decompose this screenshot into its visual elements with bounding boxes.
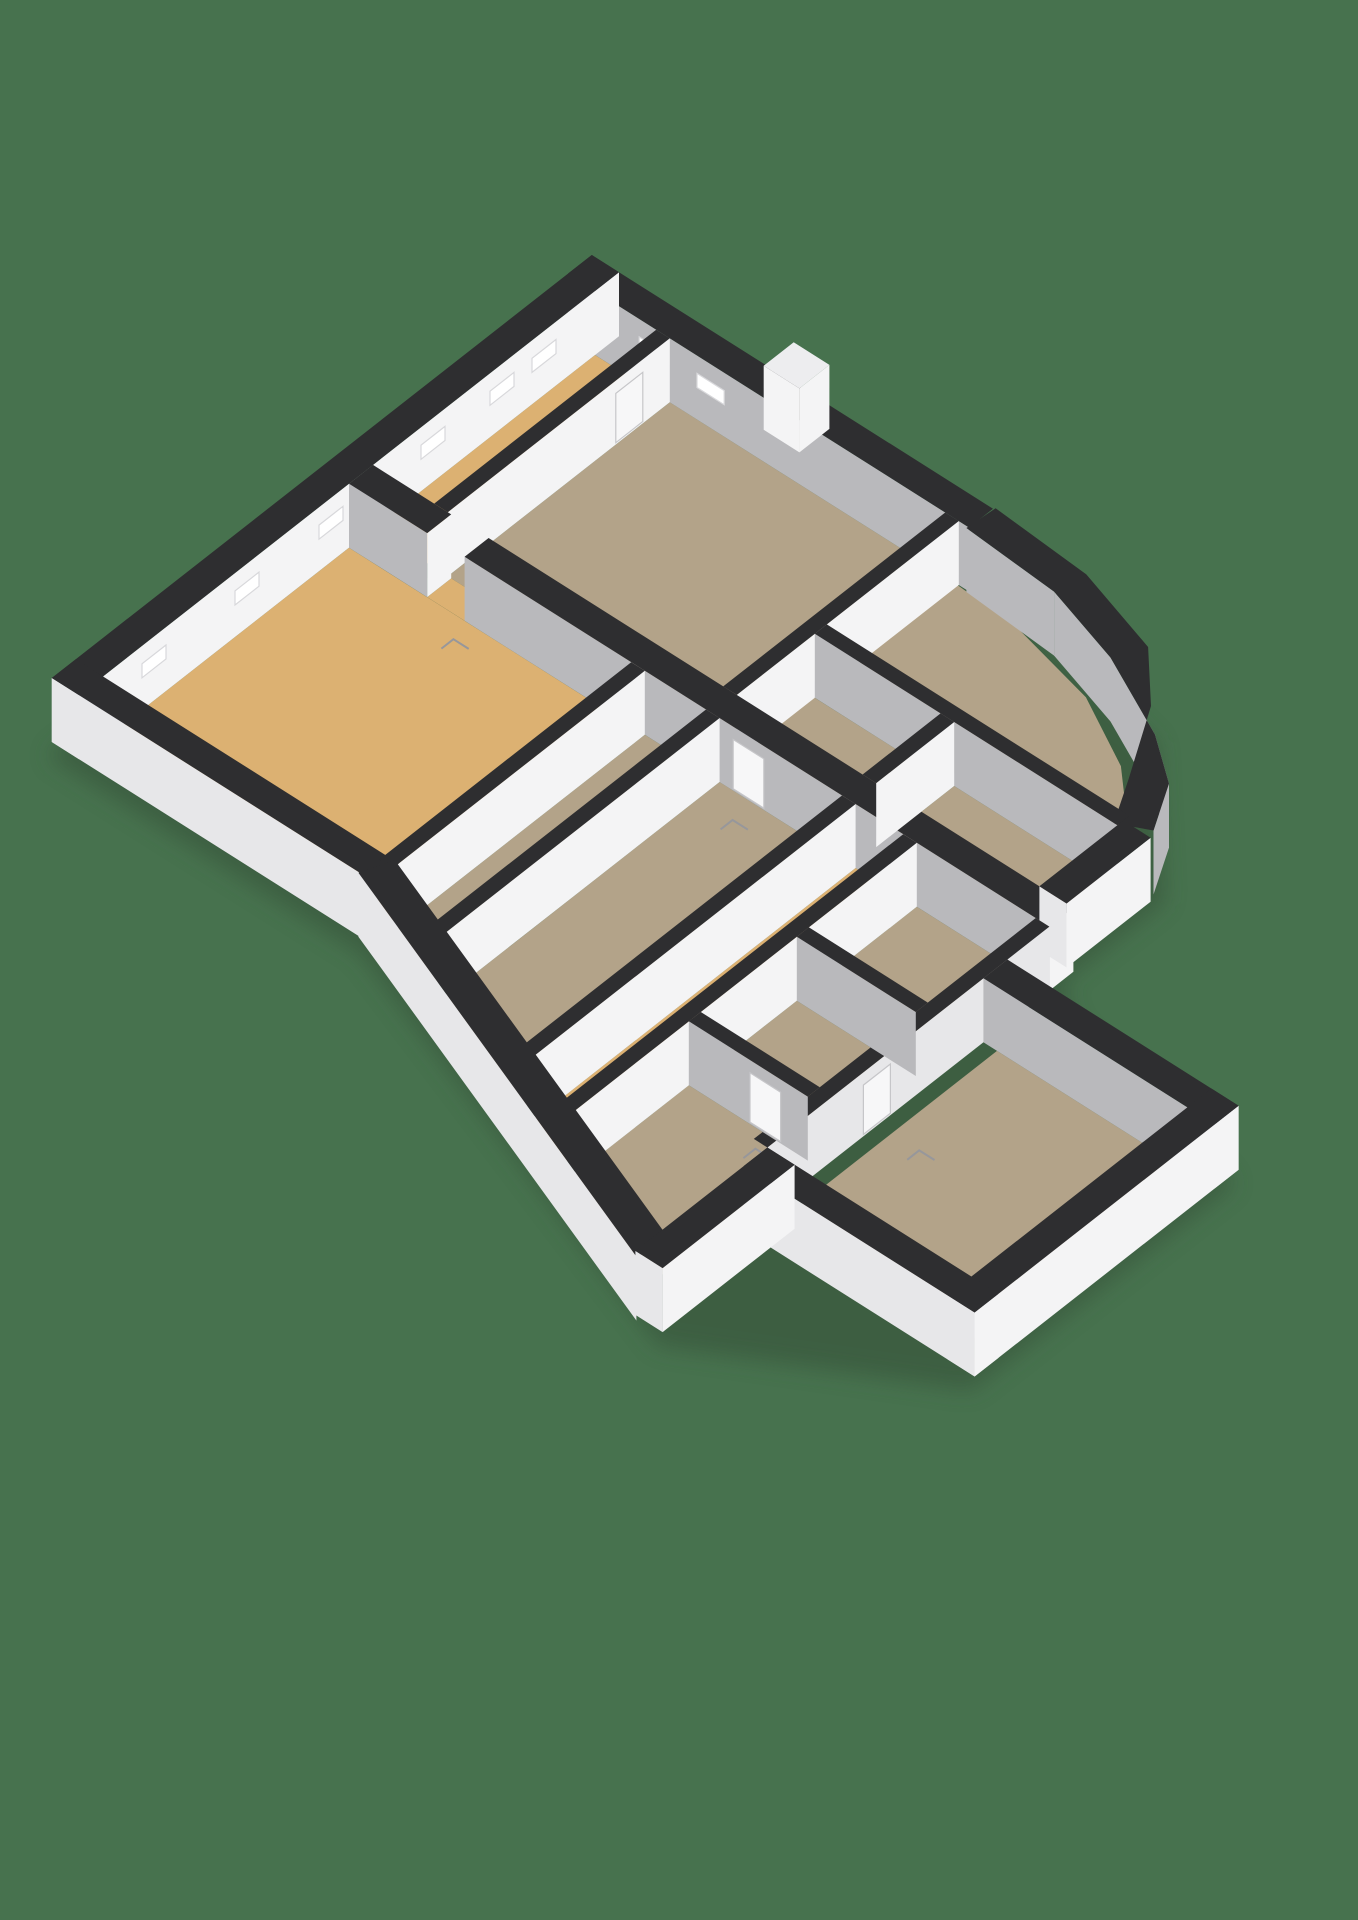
floor-plan-page — [0, 0, 1358, 1920]
wall-exterior-door-leaf — [764, 342, 830, 452]
floor-plan-3d-view — [0, 0, 1358, 1920]
